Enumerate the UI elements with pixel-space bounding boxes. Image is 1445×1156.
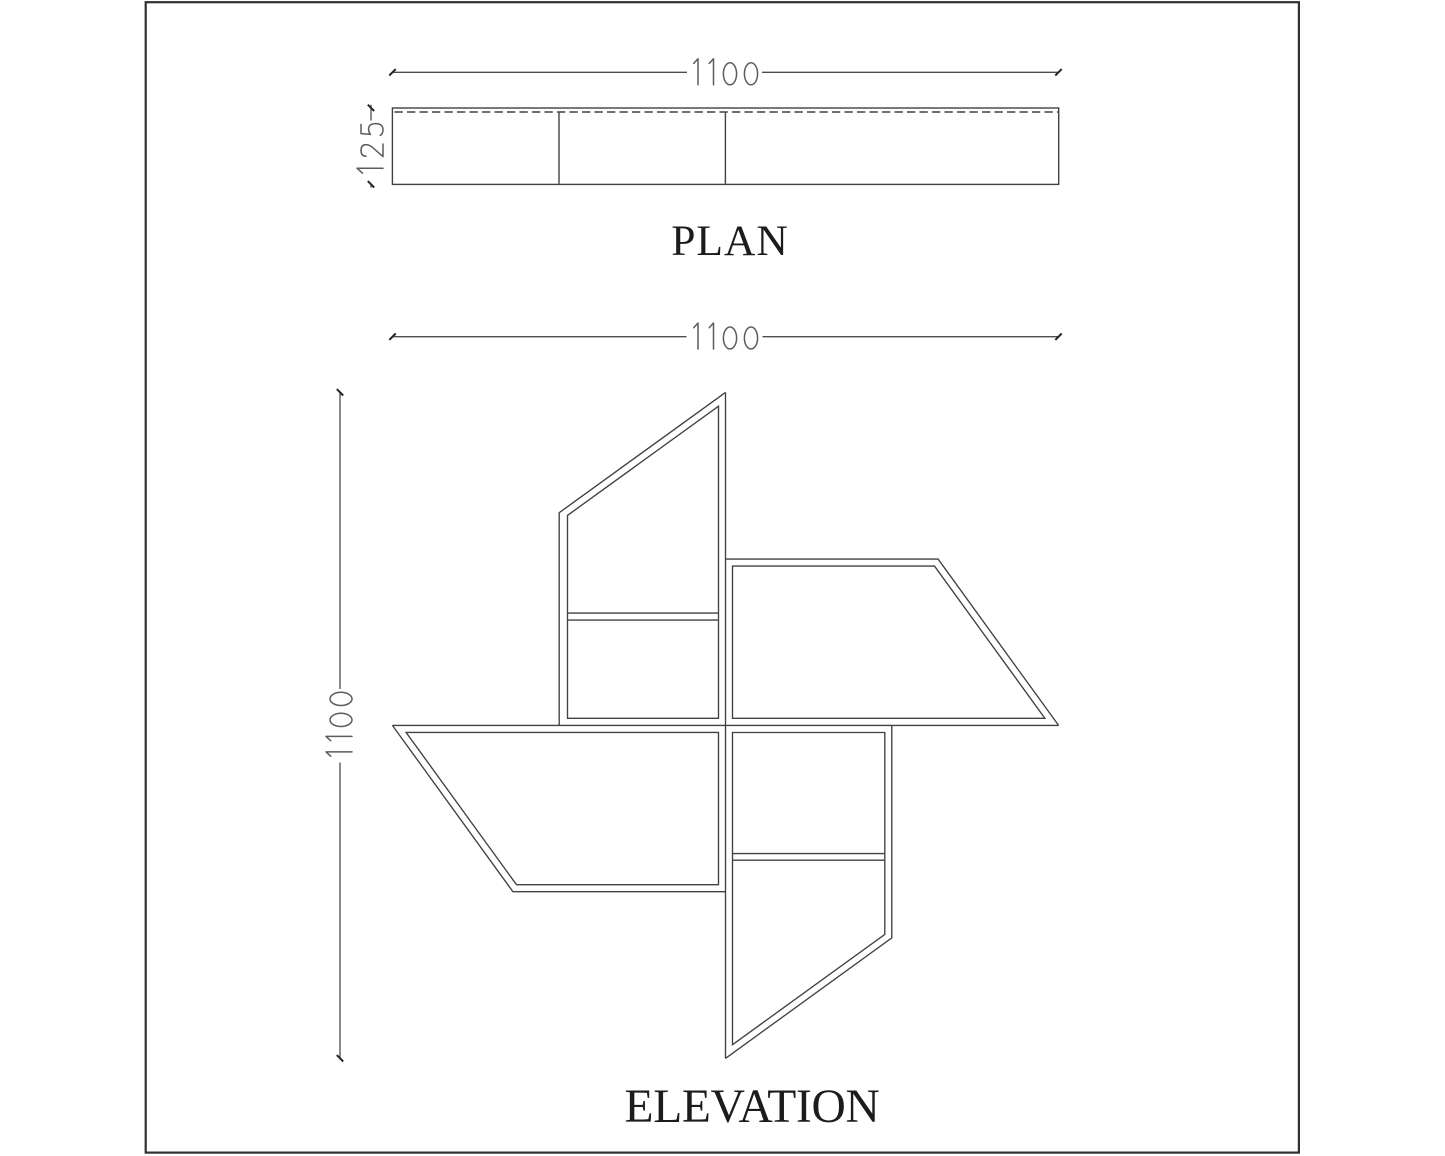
- svg-text:PLAN: PLAN: [671, 217, 789, 265]
- svg-text:ELEVATION: ELEVATION: [624, 1081, 879, 1133]
